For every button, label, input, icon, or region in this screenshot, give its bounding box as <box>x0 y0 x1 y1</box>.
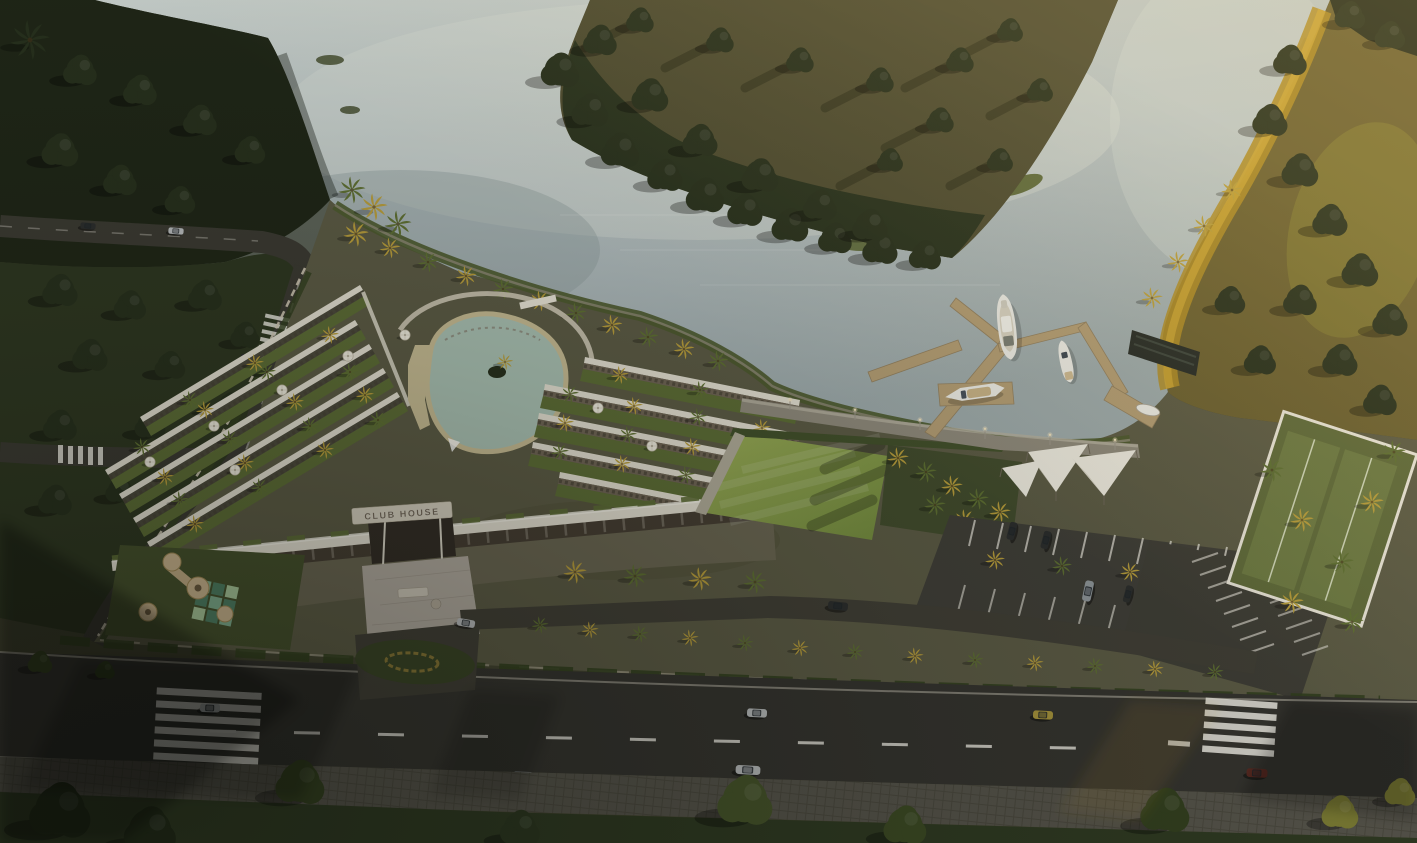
aerial-render: CLUB HOUSE <box>0 0 1417 843</box>
light-overlays <box>0 0 1417 843</box>
